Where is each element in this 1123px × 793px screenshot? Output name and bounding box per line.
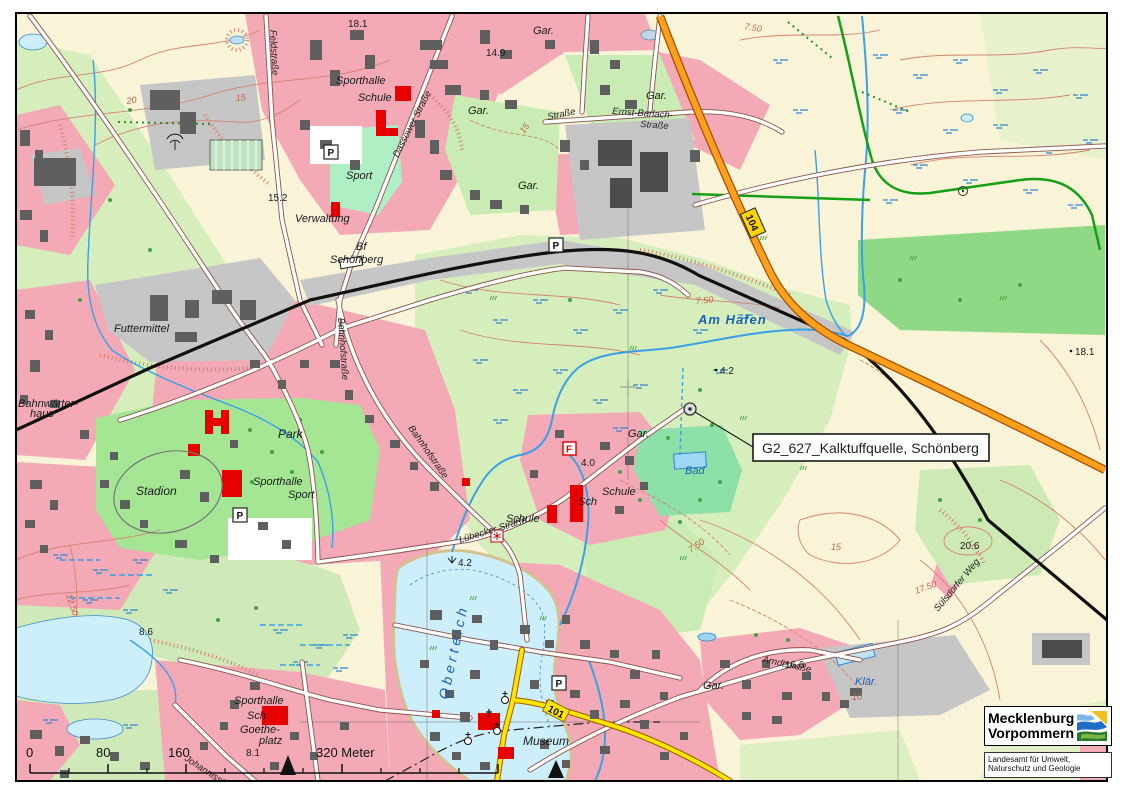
- place-label: Gar.: [518, 180, 539, 192]
- street-label: Straße: [640, 119, 669, 132]
- place-label: Sch: [578, 496, 597, 508]
- parking-icon: P: [233, 508, 247, 522]
- place-label: haus: [30, 408, 54, 420]
- svg-text:P: P: [237, 511, 244, 522]
- place-label: Futtermittel: [114, 323, 170, 335]
- water-label: Klär.: [855, 676, 877, 688]
- place-label: Sch: [247, 710, 266, 722]
- place-label: Gar.: [628, 428, 649, 440]
- scale-tick-label: 0: [26, 745, 33, 760]
- logo-box: Mecklenburg Vorpommern: [984, 706, 1112, 746]
- parking-icon: P: [549, 238, 563, 252]
- parking-icon: P: [324, 145, 338, 159]
- place-label: Gar.: [468, 105, 489, 117]
- map-canvas[interactable]: P P P P F Sporthalle Schule Sport Gar. G…: [0, 0, 1123, 793]
- place-label: Gar.: [646, 90, 667, 102]
- svg-text:P: P: [553, 241, 560, 252]
- spot-height: 4.2: [720, 366, 734, 377]
- place-label: Schule: [358, 92, 392, 104]
- scale-tick-label: 320 Meter: [316, 745, 375, 760]
- fire-station-icon: F: [563, 442, 576, 456]
- state-emblem-icon: [1077, 711, 1107, 741]
- place-label: platz: [258, 735, 283, 747]
- water-label: Am Hafen: [697, 312, 767, 327]
- contour-label: 15: [831, 542, 842, 552]
- spot-height: 14.9: [486, 48, 506, 59]
- parking-icon: P: [552, 676, 566, 690]
- spot-height: 20.6: [960, 541, 980, 552]
- place-label: Gar.: [703, 680, 724, 692]
- agency-line2: Naturschutz und Geologie: [988, 764, 1108, 773]
- spot-height: 16.6: [785, 660, 805, 671]
- logo-line1: Mecklenburg: [988, 711, 1074, 726]
- water-label: Bad: [685, 465, 705, 477]
- place-label: Sport: [346, 170, 373, 182]
- svg-text:F: F: [566, 445, 572, 456]
- place-label: Stadion: [136, 484, 177, 498]
- place-label: Museum: [523, 734, 569, 748]
- contour-label: 10: [852, 692, 862, 702]
- spot-height: 18.1: [1075, 347, 1095, 358]
- spot-height: 15.2: [268, 193, 288, 204]
- place-label: Verwaltung: [295, 213, 351, 225]
- spot-height: 18.1: [348, 19, 368, 30]
- place-label: Gar.: [533, 25, 554, 37]
- spot-height: 4.2: [458, 558, 472, 569]
- place-label: Schule: [602, 486, 636, 498]
- callout-label: G2_627_Kalktuffquelle, Schönberg: [762, 440, 979, 456]
- logo-region-name: Mecklenburg Vorpommern: [988, 711, 1074, 741]
- logo-agency: Landesamt für Umwelt, Naturschutz und Ge…: [984, 752, 1112, 778]
- agency-line1: Landesamt für Umwelt,: [988, 755, 1108, 764]
- place-label: Sporthalle: [234, 695, 284, 707]
- greenhouse-symbol: [210, 140, 262, 170]
- contour-label: 7.50: [695, 295, 713, 306]
- place-label: Sporthalle: [253, 476, 303, 488]
- terrain-layer: P P P P F Sporthalle Schule Sport Gar. G…: [16, 13, 1107, 793]
- svg-text:P: P: [556, 679, 563, 690]
- place-label: Schönberg: [330, 254, 384, 266]
- callout-box: G2_627_Kalktuffquelle, Schönberg: [753, 434, 989, 461]
- place-label: Bf: [356, 241, 367, 253]
- spot-height: 8.1: [246, 748, 260, 759]
- svg-text:P: P: [328, 148, 335, 159]
- map-window: P P P P F Sporthalle Schule Sport Gar. G…: [0, 0, 1123, 793]
- logo-line2: Vorpommern: [988, 726, 1074, 741]
- spot-height: 4.0: [581, 458, 595, 469]
- spot-height: 8.6: [139, 627, 153, 638]
- scale-tick-label: 160: [168, 745, 190, 760]
- place-label: Sporthalle: [336, 75, 386, 87]
- place-label: Park: [278, 427, 304, 441]
- contour-label: 20: [125, 95, 137, 106]
- contour-label: 15: [235, 92, 247, 103]
- place-label: Sport: [288, 489, 315, 501]
- scale-tick-label: 80: [96, 745, 110, 760]
